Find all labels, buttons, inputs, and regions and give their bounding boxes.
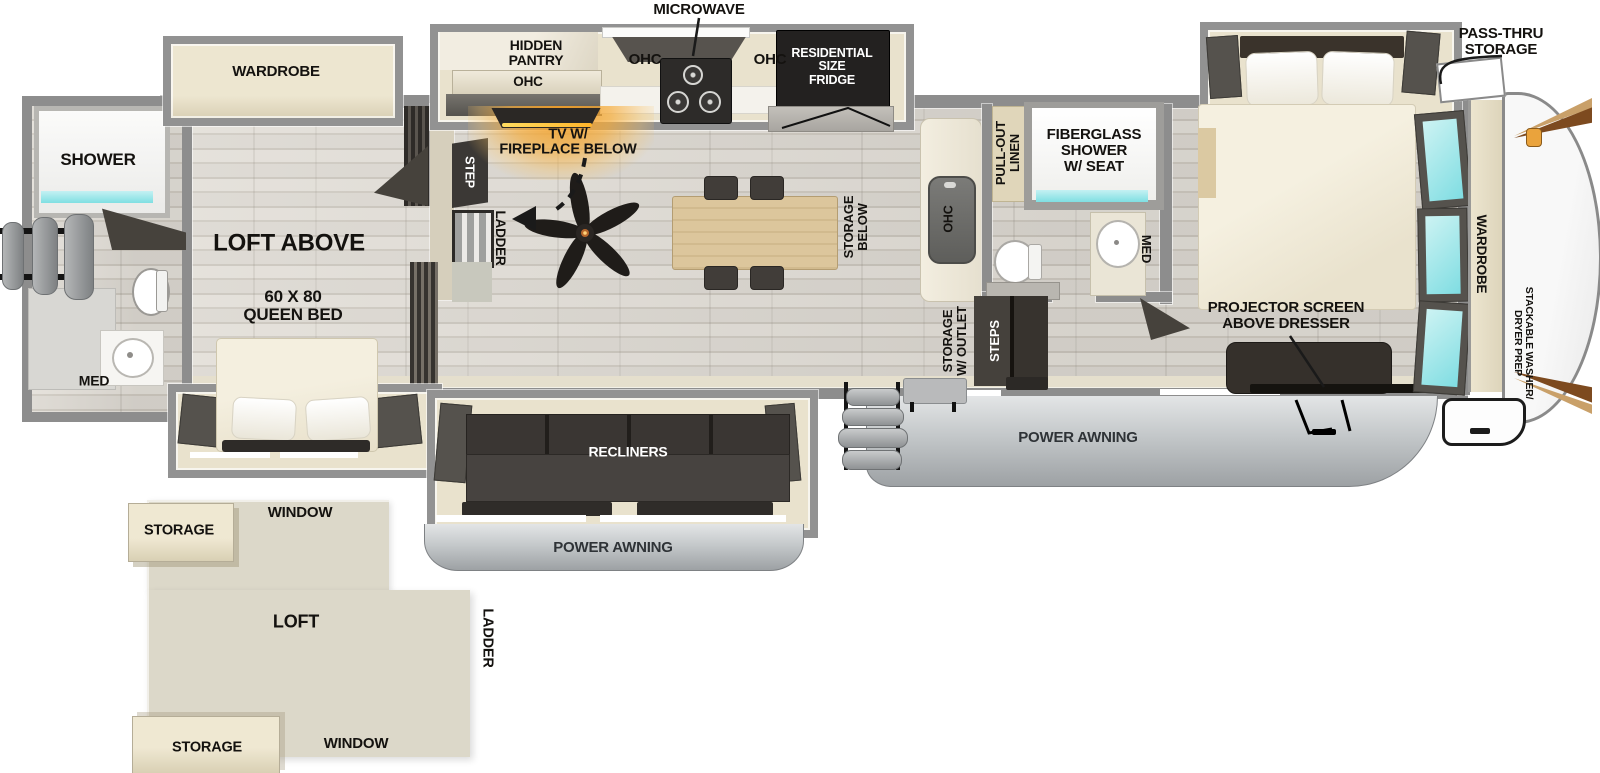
rv-floorplan-diagram: MICROWAVE HIDDEN PANTRY OHC OHC OHC RESI…: [0, 0, 1600, 773]
entry-step: [846, 388, 900, 406]
label-storage-below: STORAGE BELOW: [842, 196, 870, 259]
dining-chair: [704, 266, 738, 290]
entry-step: [838, 428, 908, 448]
label-ladder: LADDER: [493, 210, 507, 265]
wardrobe-window: [1417, 208, 1469, 303]
cooktop-stove: [660, 58, 732, 124]
dining-chair: [750, 266, 784, 290]
rear-bath-faucet: [127, 352, 133, 358]
bedroom-steps: [974, 296, 1048, 386]
dining-table: [672, 196, 838, 270]
front-bed-window-left: [1206, 35, 1242, 99]
label-shower-rear: SHOWER: [60, 151, 135, 169]
ladder-platform: [452, 262, 492, 302]
label-inset-storage-top: STORAGE: [144, 523, 214, 538]
rear-ladder-rung: [64, 214, 94, 300]
fridge-counter: [768, 106, 894, 132]
entry-landing-bench: [903, 378, 967, 404]
rear-ladder-rung: [32, 217, 58, 295]
wardrobe-window: [1414, 110, 1472, 210]
mid-toilet-tank: [1028, 244, 1042, 280]
front-compartment-door: [1442, 398, 1526, 446]
label-power-awning-front: POWER AWNING: [1018, 430, 1138, 446]
entry-steps: [836, 376, 908, 480]
rear-bath-sink: [112, 338, 154, 378]
label-inset-window-top: WINDOW: [268, 505, 333, 521]
recliner-sofa-seat: [466, 454, 790, 502]
projector-screen-strip: [1250, 384, 1432, 393]
window-glass: [1425, 216, 1460, 295]
rear-ladder: [0, 214, 96, 298]
bench-leg: [910, 402, 914, 412]
dining-chair: [704, 176, 738, 200]
window-glass: [1423, 119, 1464, 202]
stove-burner: [699, 91, 721, 113]
label-steps: STEPS: [988, 320, 1002, 362]
compartment-door-handle: [1470, 428, 1490, 434]
label-fiberglass-shower: FIBERGLASS SHOWER W/ SEAT: [1047, 127, 1142, 175]
recliner-slide-sill: [436, 515, 586, 522]
pass-thru-door: [1436, 57, 1506, 104]
label-microwave: MICROWAVE: [653, 2, 744, 18]
bed-slide-sill: [190, 452, 270, 458]
label-inset-window-bottom: WINDOW: [324, 736, 389, 752]
label-tv-fireplace: TV W/ FIREPLACE BELOW: [499, 128, 636, 159]
label-queen-bed: 60 X 80 QUEEN BED: [243, 288, 342, 324]
label-step: STEP: [462, 156, 475, 188]
loft-ladder-panel: [410, 262, 438, 392]
label-fridge: RESIDENTIAL SIZE FRIDGE: [791, 47, 872, 87]
label-power-awning-door: POWER AWNING: [553, 540, 673, 556]
entry-step: [842, 408, 904, 426]
window-glass: [1421, 309, 1462, 387]
wardrobe-window: [1413, 300, 1471, 395]
rear-ladder-rung: [2, 222, 24, 290]
mid-bath-wall-left: [982, 104, 992, 302]
recliner-footrest-mat: [462, 502, 612, 516]
bench-leg: [952, 402, 956, 412]
label-recliners: RECLINERS: [588, 445, 667, 460]
label-inset-ladder: LADDER: [479, 608, 494, 667]
label-pull-out-linen: PULL-OUT LINEN: [994, 121, 1022, 185]
dining-chair: [750, 176, 784, 200]
rear-wardrobe-slide: [163, 36, 403, 126]
recliner-footrest-mat: [637, 502, 773, 516]
shower-water-strip: [1036, 190, 1148, 202]
queen-bed-pillow: [305, 396, 372, 442]
front-bed-blanket-edge: [1198, 128, 1216, 198]
label-pass-thru-storage: PASS-THRU STORAGE: [1459, 26, 1544, 58]
brand-badge: [1526, 128, 1542, 147]
label-storage-w-outlet: STORAGE W/ OUTLET: [941, 306, 969, 376]
bed-slide-window-right: [372, 394, 423, 449]
label-projector-screen: PROJECTOR SCREEN ABOVE DRESSER: [1208, 300, 1365, 332]
rear-shower-water-strip: [41, 191, 153, 203]
rear-toilet-tank: [156, 270, 168, 312]
kitchen-faucet: [944, 182, 956, 188]
label-loft-above: LOFT ABOVE: [213, 230, 365, 255]
front-bed-window-right: [1401, 31, 1440, 96]
med-sink-drain: [1114, 240, 1119, 245]
label-wardrobe-rear: WARDROBE: [232, 64, 320, 80]
entry-step: [842, 450, 902, 470]
label-sink-ohc: OHC: [942, 205, 955, 232]
front-bed-mattress: [1198, 104, 1416, 310]
bed-slide-sill: [280, 452, 358, 458]
bedroom-steps-divider: [1010, 296, 1014, 386]
label-med-rear: MED: [79, 374, 110, 389]
label-stackable-washer: STACKABLE WASHER/ DRYER PREP: [1512, 287, 1534, 400]
queen-bed-runner: [222, 440, 370, 452]
label-wardrobe-front: WARDROBE: [1474, 215, 1488, 294]
stove-burner: [683, 65, 703, 85]
label-ohc-right: OHC: [754, 52, 787, 68]
label-inset-storage-bottom: STORAGE: [172, 740, 242, 755]
recliner-slide-sill: [600, 515, 786, 522]
loft-step-treads: [452, 210, 494, 268]
label-ohc-left: OHC: [629, 52, 662, 68]
queen-bed-pillow: [231, 396, 297, 441]
label-med-mid: MED: [1139, 235, 1153, 263]
entry-floor-mat: [1006, 377, 1048, 390]
label-inset-loft: LOFT: [273, 612, 319, 631]
label-ohc-pantry: OHC: [513, 75, 542, 89]
label-hidden-pantry: HIDDEN PANTRY: [509, 38, 564, 68]
stove-burner: [667, 91, 689, 113]
microwave-front: [602, 27, 750, 38]
front-bed-pillow: [1245, 51, 1319, 107]
front-bed-pillow: [1321, 51, 1395, 107]
